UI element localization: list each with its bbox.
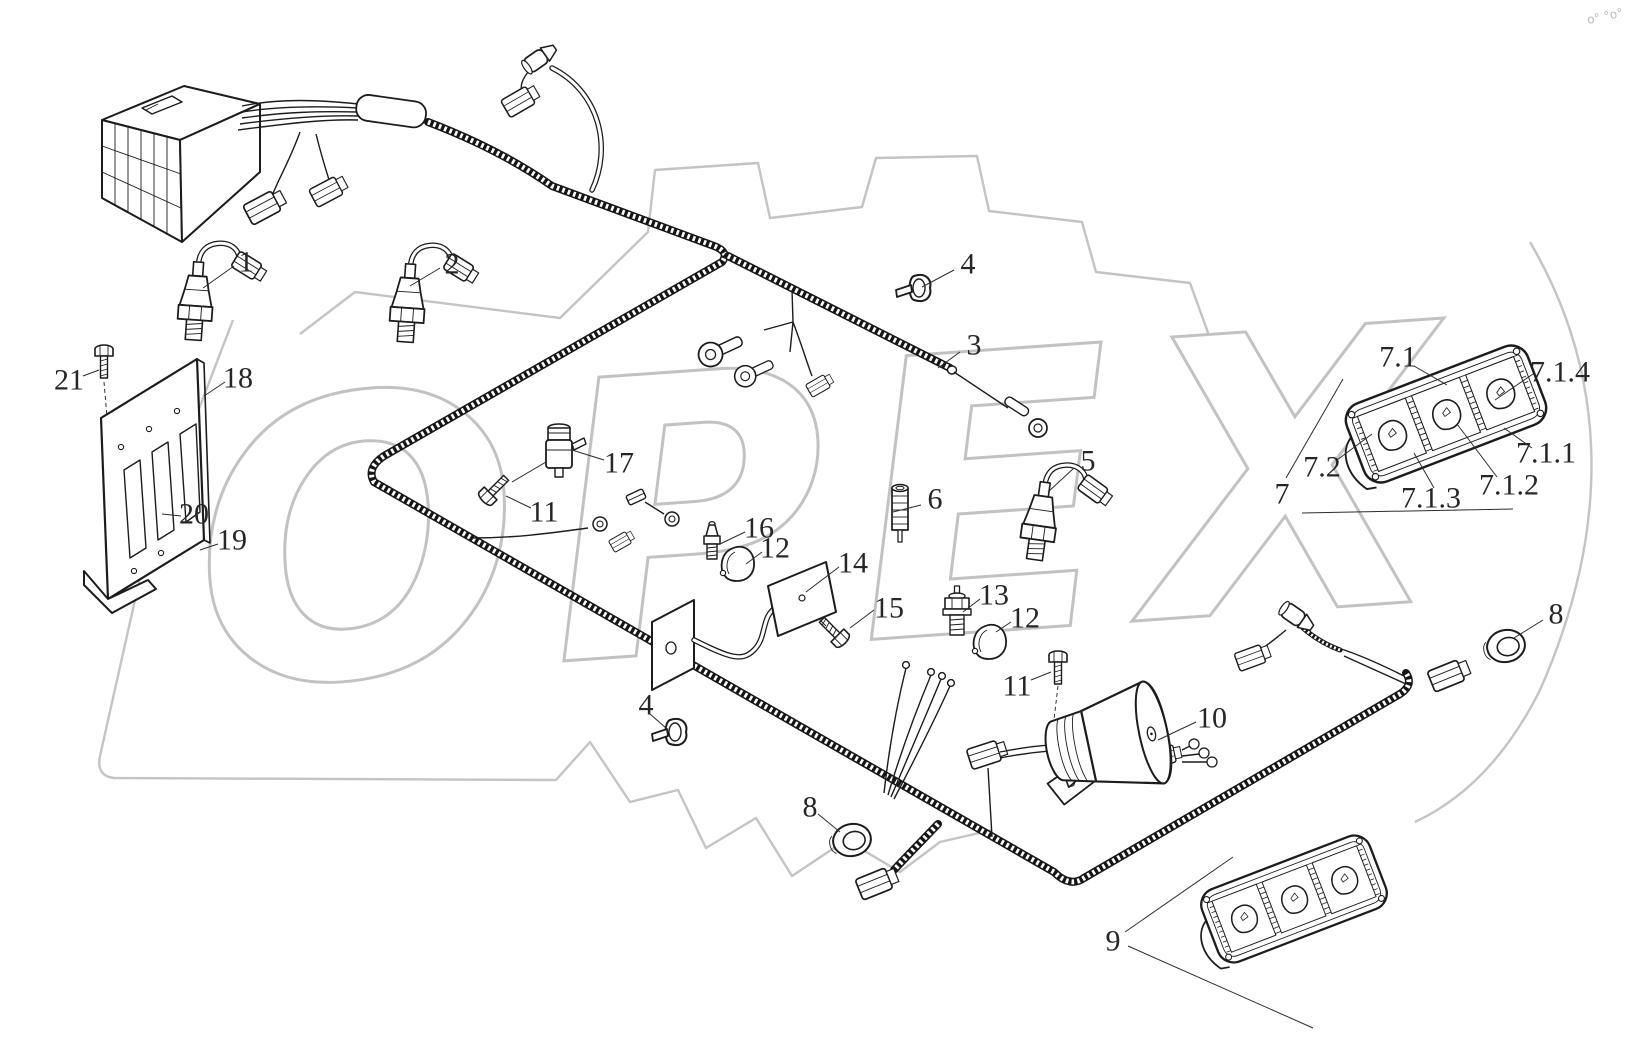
callout-7.2: 7.2	[1303, 451, 1341, 484]
callout-18: 18	[223, 362, 253, 395]
bolt-21	[95, 345, 113, 378]
callout-4: 4	[639, 689, 654, 722]
callout-7: 7	[1275, 478, 1290, 511]
leader-line-21	[83, 370, 99, 376]
callout-13: 13	[979, 579, 1009, 612]
callout-19: 19	[217, 524, 247, 557]
bottom-branch-connector	[855, 865, 900, 900]
corner-marks-text: o° °o°	[1586, 6, 1625, 27]
callout-16: 16	[744, 512, 774, 545]
callout-7.1: 7.1	[1379, 341, 1417, 374]
callout-11: 11	[1003, 670, 1032, 703]
top-center-branch	[501, 41, 602, 190]
callout-2: 2	[445, 248, 460, 281]
callout-7.1.2: 7.1.2	[1479, 469, 1539, 502]
lamp-assembly-9	[1185, 831, 1392, 974]
callout-11: 11	[530, 496, 559, 529]
callout-6: 6	[928, 483, 943, 516]
wiring-harness-diagram: OPEX o° °o°	[0, 0, 1626, 1053]
callout-21: 21	[54, 364, 84, 397]
callout-14: 14	[838, 547, 868, 580]
callout-7.1.1: 7.1.1	[1516, 437, 1576, 470]
callout-8: 8	[1549, 598, 1564, 631]
parts-diagram-page: OPEX o° °o°	[0, 0, 1626, 1053]
callout-4: 4	[961, 248, 976, 281]
callout-7.1.4: 7.1.4	[1530, 356, 1590, 389]
callout-12: 12	[1010, 602, 1040, 635]
callout-15: 15	[874, 592, 904, 625]
callout-1: 1	[239, 246, 254, 279]
callout-7.1.3: 7.1.3	[1401, 482, 1461, 515]
callout-17: 17	[604, 447, 634, 480]
leader-line-8	[818, 814, 840, 832]
callout-9: 9	[1106, 925, 1121, 958]
callout-8: 8	[803, 791, 818, 824]
callout-20: 20	[179, 498, 209, 531]
drop-connector-b	[309, 173, 350, 207]
drop-connector-a	[243, 187, 289, 225]
leader-line-1	[203, 266, 234, 288]
callout-10: 10	[1197, 702, 1227, 735]
top-branch-connector	[501, 83, 542, 118]
multi-pin-connector-block	[102, 86, 428, 242]
callout-3: 3	[967, 329, 982, 362]
leader-line-8	[1514, 620, 1543, 638]
grommet-8-right	[1481, 626, 1528, 666]
callout-5: 5	[1081, 445, 1096, 478]
mounting-plate-18	[84, 359, 210, 613]
